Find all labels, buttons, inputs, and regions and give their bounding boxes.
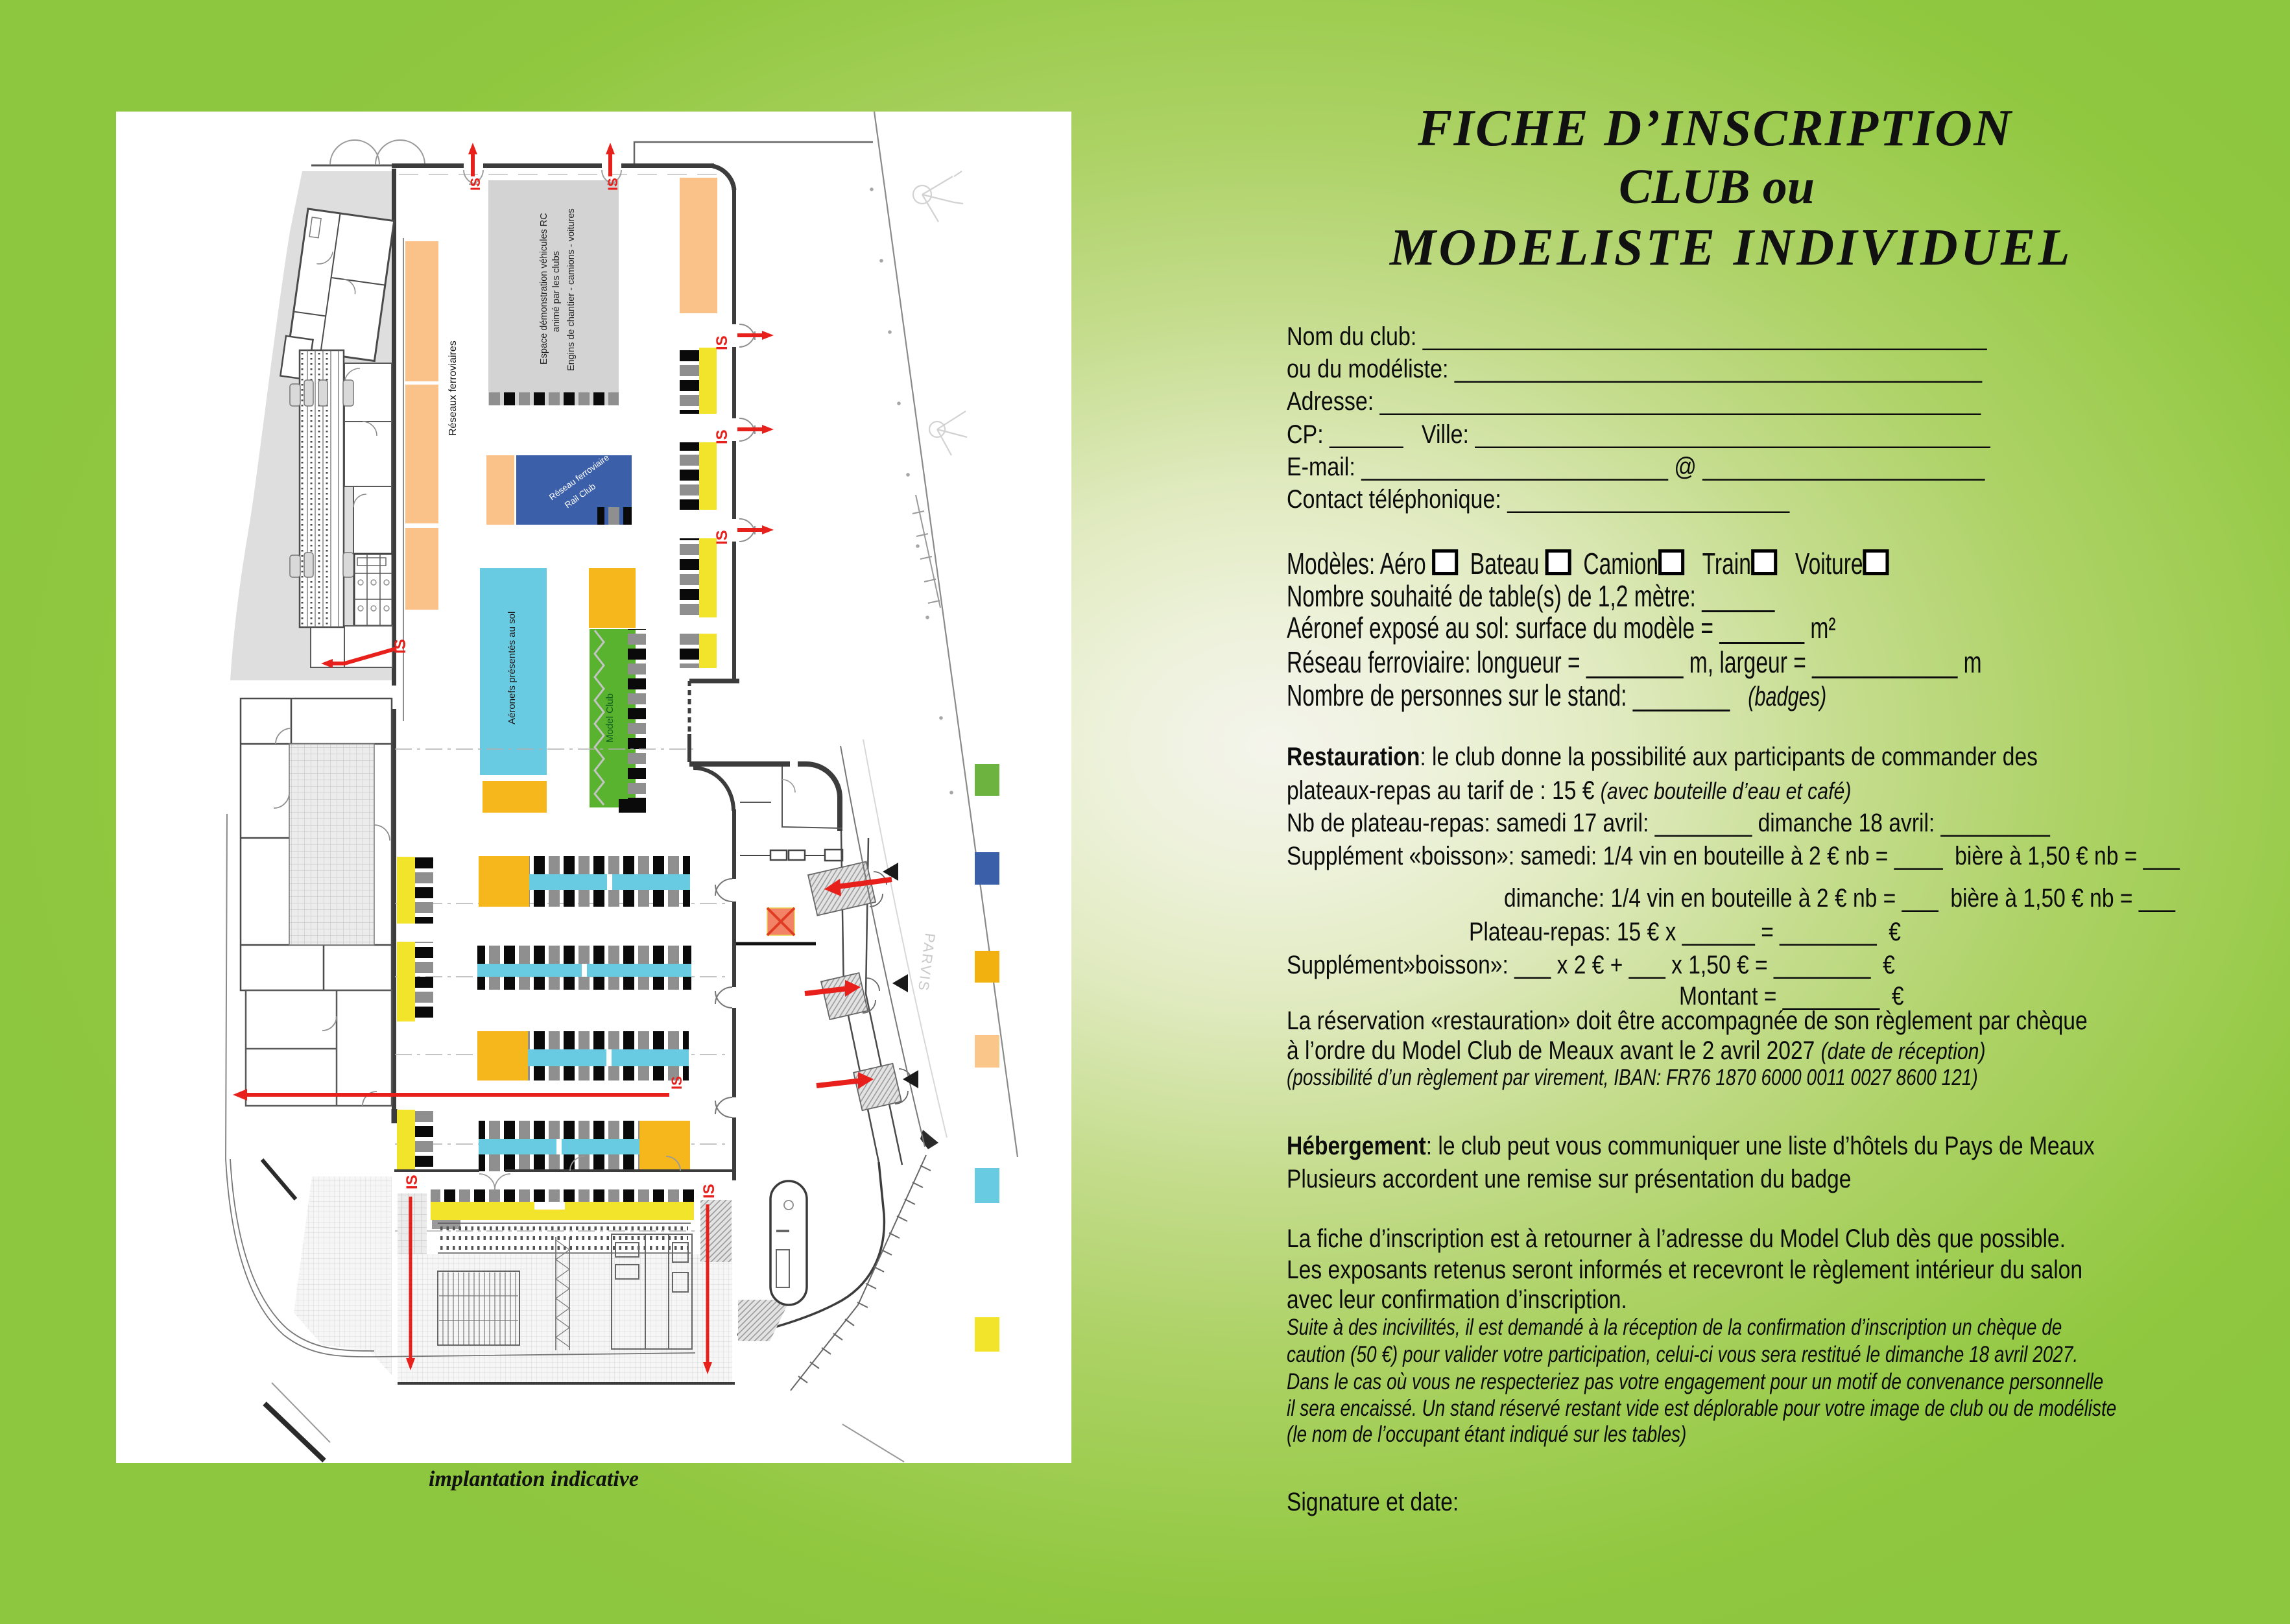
svg-text:IS: IS xyxy=(669,1076,685,1090)
svg-text:IS: IS xyxy=(606,178,621,191)
svg-text:IS: IS xyxy=(468,178,483,191)
svg-text:PARVIS: PARVIS xyxy=(915,932,938,992)
svg-text:IS: IS xyxy=(403,1175,421,1189)
svg-text:IS: IS xyxy=(713,429,731,444)
svg-text:animé par les clubs: animé par les clubs xyxy=(551,251,562,332)
svg-text:IS: IS xyxy=(700,1184,718,1199)
svg-text:Aéronefs présentés au sol: Aéronefs présentés au sol xyxy=(507,612,518,724)
svg-text:IS: IS xyxy=(713,530,731,545)
svg-text:IS: IS xyxy=(392,639,409,654)
svg-text:Espace démonstration véhicules: Espace démonstration véhicules RC xyxy=(539,213,549,364)
svg-text:Engins de chantier - camions -: Engins de chantier - camions - voitures xyxy=(566,208,577,371)
svg-text:IS: IS xyxy=(713,335,731,350)
svg-text:Réseaux ferroviaires: Réseaux ferroviaires xyxy=(447,340,459,436)
svg-text:Model Club: Model Club xyxy=(604,693,615,743)
